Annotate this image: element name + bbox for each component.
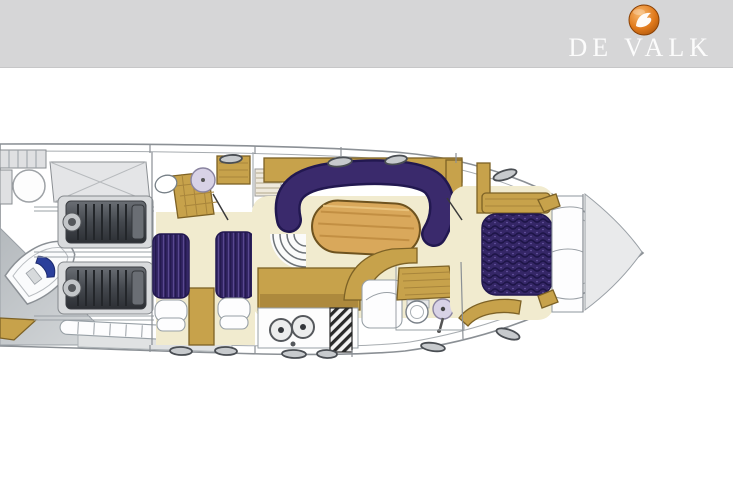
yacht-listing-image: DE VALK: [0, 0, 733, 488]
aft-twin-cabin: [153, 212, 255, 345]
brand-banner: DE VALK: [0, 0, 733, 68]
foredeck: [585, 194, 642, 310]
berth-port: [153, 234, 189, 298]
engine-port: [58, 196, 153, 248]
berth-starboard: [216, 232, 254, 298]
toilet-icon: [406, 301, 428, 323]
engine-starboard: [58, 262, 153, 314]
falcon-logo-icon: [627, 3, 661, 37]
brand-name: DE VALK: [553, 33, 713, 63]
cabin-walkway: [189, 288, 214, 345]
liferaft-icon: [13, 170, 45, 202]
island-berth: [482, 214, 552, 295]
yacht-floorplan-diagram: [0, 0, 733, 488]
forward-cabin: [447, 163, 583, 326]
galley-stairs-hatch: [330, 308, 352, 352]
